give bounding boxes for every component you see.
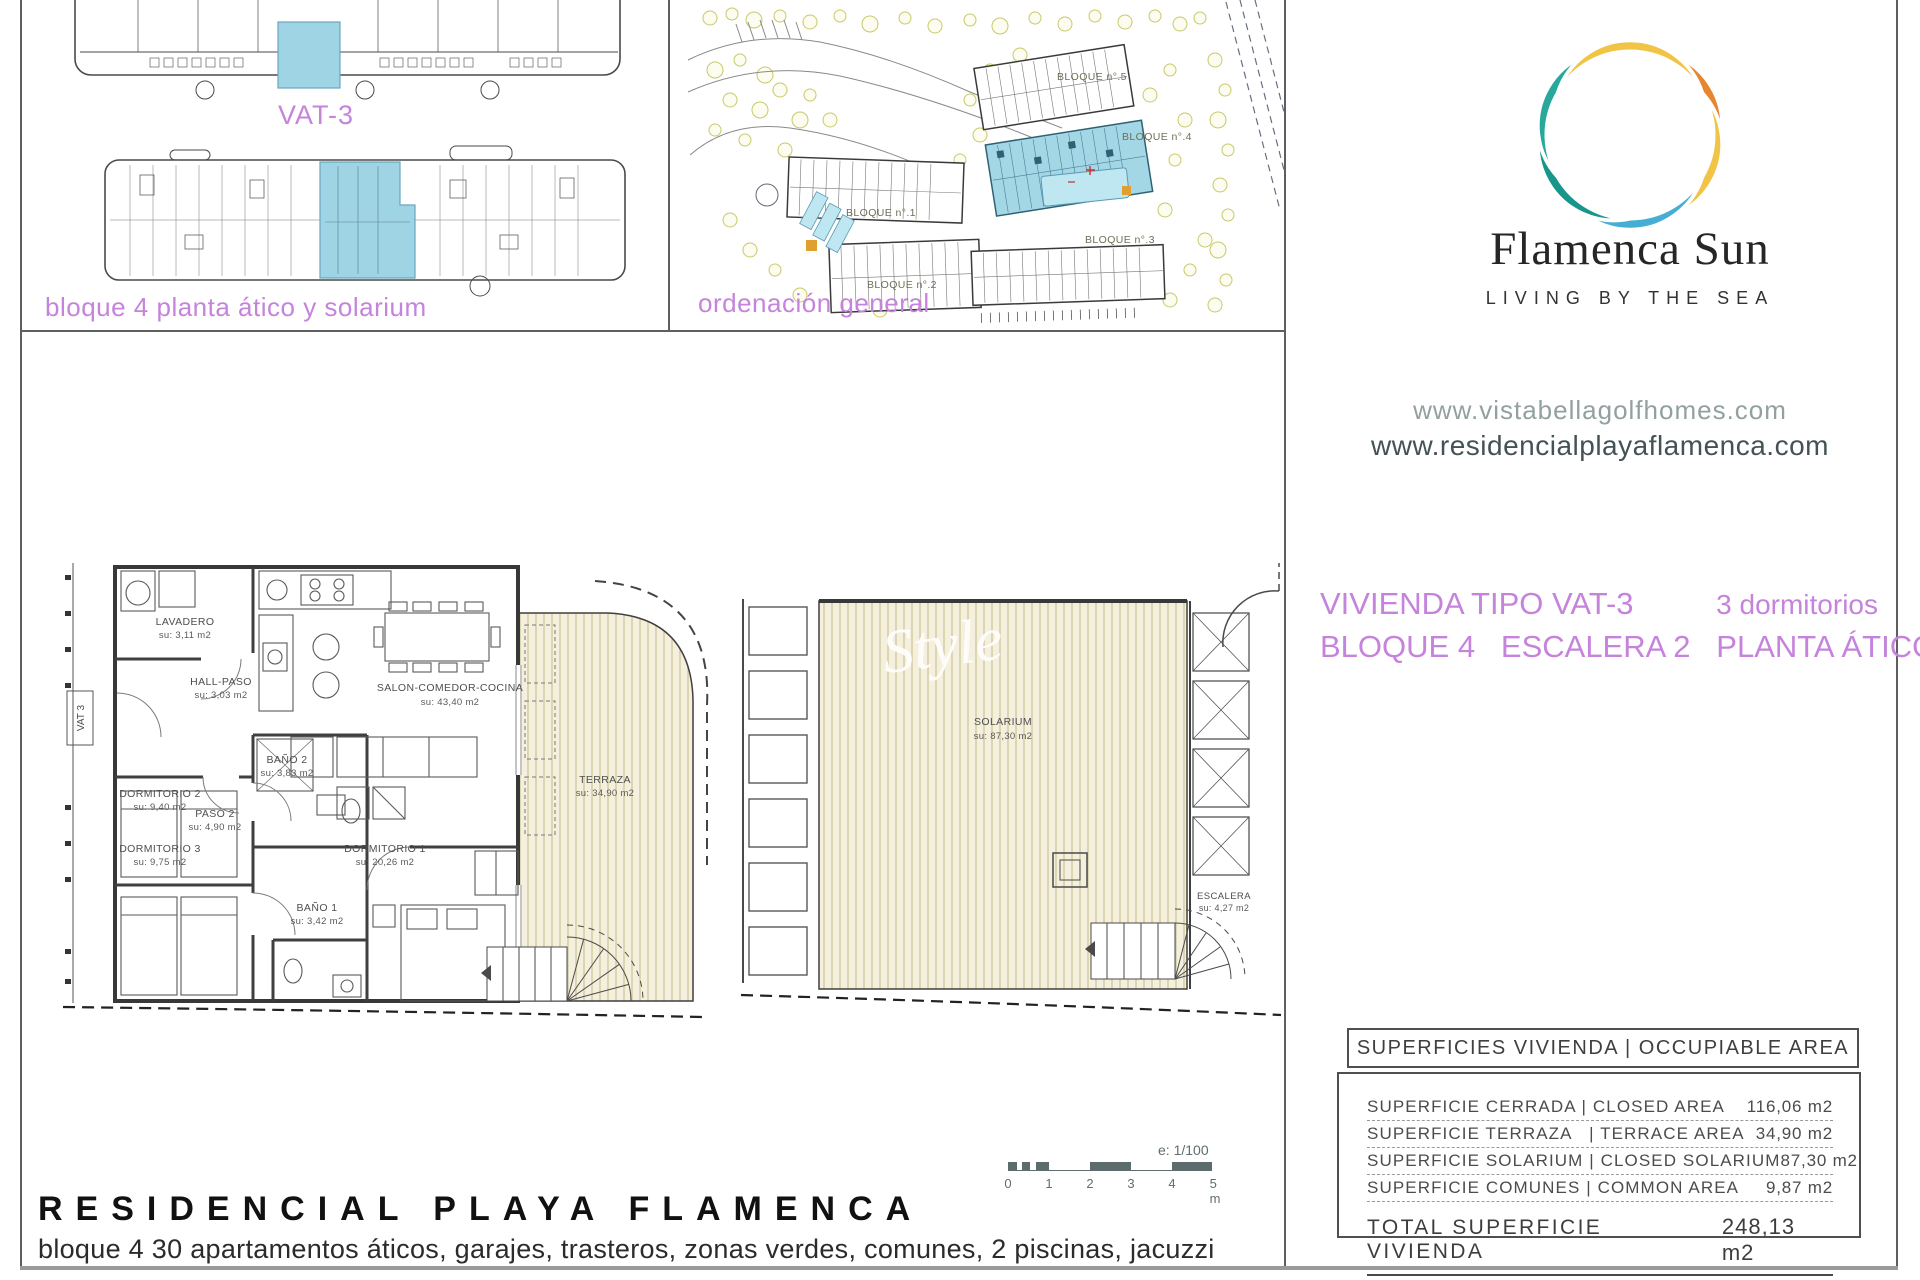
bloque-5-label: BLOQUE n°.5 [1057,71,1127,83]
block-plans-panel: VAT-3 [20,0,670,330]
bloque-4-label: BLOQUE n°.4 [1122,131,1192,143]
bloque-3-building [971,245,1165,324]
website-link-1[interactable]: www.vistabellagolfhomes.com [1320,395,1880,426]
row-label: SUPERFICIE TERRAZA | TERRACE AREA [1367,1124,1745,1144]
room-label-bano1: BAÑO 1 [297,901,338,914]
svg-text:su: 4,90 m2: su: 4,90 m2 [189,822,242,833]
room-label-terraza: TERRAZA [579,774,631,786]
unit-bedrooms: 3 dormitorios [1716,589,1878,621]
table-row: SUPERFICIE SOLARIUM | CLOSED SOLARIUM 87… [1367,1148,1833,1175]
vent-boxes [1193,613,1249,875]
row-value: 87,30 m2 [1781,1151,1858,1171]
unit-location-line: BLOQUE 4 ESCALERA 2 PLANTA ÁTICO [1320,629,1878,665]
bloque-1-label: BLOQUE n°.1 [846,207,916,219]
table-row: SUPERFICIE COMUNES | COMMON AREA 9,87 m2 [1367,1175,1833,1202]
website-link-2[interactable]: www.residencialplayaflamenca.com [1320,430,1880,462]
row-label: SUPERFICIE COMUNES | COMMON AREA [1367,1178,1739,1198]
svg-text:su: 3,42 m2: su: 3,42 m2 [291,916,344,927]
svg-text:su: 87,30 m2: su: 87,30 m2 [974,731,1033,742]
apartment-floorplan: VAT 3 LAVADERO su: 3,11 m2 HALL-PASO su:… [55,555,710,1020]
room-label-dormitorio1: DORMITORIO 1 [344,843,426,855]
scale-bar: e: 1/100 0 1 2 3 4 5 m [1000,1142,1240,1202]
row-value: 9,87 m2 [1766,1178,1833,1198]
terrace-deck [518,613,693,1001]
table-row: SUPERFICIE CERRADA | CLOSED AREA 116,06 … [1367,1094,1833,1121]
row-label: SUPERFICIE SOLARIUM | CLOSED SOLARIUM [1367,1151,1781,1171]
svg-text:su: 34,90 m2: su: 34,90 m2 [576,788,635,799]
svg-text:su: 20,26 m2: su: 20,26 m2 [356,857,415,868]
areas-table-header-text: SUPERFICIES VIVIENDA | OCCUPIABLE AREA [1357,1037,1849,1060]
room-label-salon: SALON-COMEDOR-COCINA [377,682,523,694]
room-label-escalera: ESCALERA [1197,891,1251,902]
residencial-subtitle: bloque 4 30 apartamentos áticos, garajes… [38,1234,1215,1265]
solarium-floorplan: Style SOLARIUM su: 87,30 m2 ESCALERA su:… [735,555,1285,1020]
room-label-dormitorio2: DORMITORIO 2 [119,788,201,800]
table-row: SUPERFICIE TERRAZA | TERRACE AREA 34,90 … [1367,1121,1833,1148]
row-label: SUPERFICIE CERRADA | CLOSED AREA [1367,1097,1725,1117]
scale-ratio: e: 1/100 [1158,1142,1209,1158]
brand-name: Flamenca Sun [1430,222,1830,276]
highlighted-atico-unit [320,162,415,278]
svg-text:su: 43,40 m2: su: 43,40 m2 [421,697,480,708]
bloque-5-building [974,45,1134,130]
solarium-level-schematic [75,0,620,99]
areas-table: SUPERFICIE CERRADA | CLOSED AREA 116,06 … [1337,1072,1861,1238]
block-plans-caption: bloque 4 planta ático y solarium [45,292,427,322]
sun-logo-icon [1535,40,1725,230]
total-label: TOTAL SUPERFICIE VIVIENDA [1367,1216,1722,1264]
site-plan-caption: ordenación general [698,288,930,318]
residencial-title: RESIDENCIAL PLAYA FLAMENCA [38,1190,923,1229]
highlighted-solarium-unit [278,22,340,88]
divider-horizontal [20,330,1286,332]
site-plan-panel: BLOQUE n°.5 BLOQUE n°.4 BLOQUE n°.1 BLOQ… [670,0,1285,330]
entry-tag: VAT 3 [76,705,87,732]
bloque-3-label: BLOQUE n°.3 [1085,234,1155,246]
vat3-tag: VAT-3 [278,100,354,130]
room-label-dormitorio3: DORMITORIO 3 [119,843,201,855]
svg-text:su: 3,83 m2: su: 3,83 m2 [261,768,314,779]
total-value: 248,13 m2 [1722,1214,1833,1266]
unit-type-label: VIVIENDA TIPO VAT-3 [1320,586,1634,622]
svg-text:su: 4,27 m2: su: 4,27 m2 [1199,903,1249,913]
svg-text:su: 9,75 m2: su: 9,75 m2 [134,857,187,868]
svg-text:su: 3,03 m2: su: 3,03 m2 [195,690,248,701]
room-label-lavadero: LAVADERO [156,616,215,628]
svg-text:su: 3,11 m2: su: 3,11 m2 [159,630,211,641]
left-boundary-hatch [65,563,73,1003]
room-label-paso2: PASO 2 [195,808,235,820]
brand-tagline: LIVING BY THE SEA [1430,288,1830,309]
scale-bar-strip: 0 1 2 3 4 5 m [1008,1162,1212,1171]
room-label-hall-paso: HALL-PASO [190,676,252,688]
atico-level-schematic [105,146,625,296]
svg-text:su: 9,40 m2: su: 9,40 m2 [134,802,187,813]
row-value: 116,06 m2 [1747,1097,1833,1117]
dashed-boundary-road [1226,0,1284,210]
planter-column [743,599,807,983]
plan-sheet: VAT-3 [0,0,1920,1280]
plot-boundary [63,1007,703,1017]
room-label-solarium: SOLARIUM [974,716,1032,728]
row-value: 34,90 m2 [1756,1124,1833,1144]
plot-boundary-solarium [741,995,1281,1015]
table-total-row: TOTAL SUPERFICIE VIVIENDA 248,13 m2 [1367,1202,1833,1276]
unit-header: VIVIENDA TIPO VAT-3 3 dormitorios BLOQUE… [1320,586,1878,665]
areas-table-header: SUPERFICIES VIVIENDA | OCCUPIABLE AREA [1347,1028,1859,1068]
room-label-bano2: BAÑO 2 [267,753,308,766]
